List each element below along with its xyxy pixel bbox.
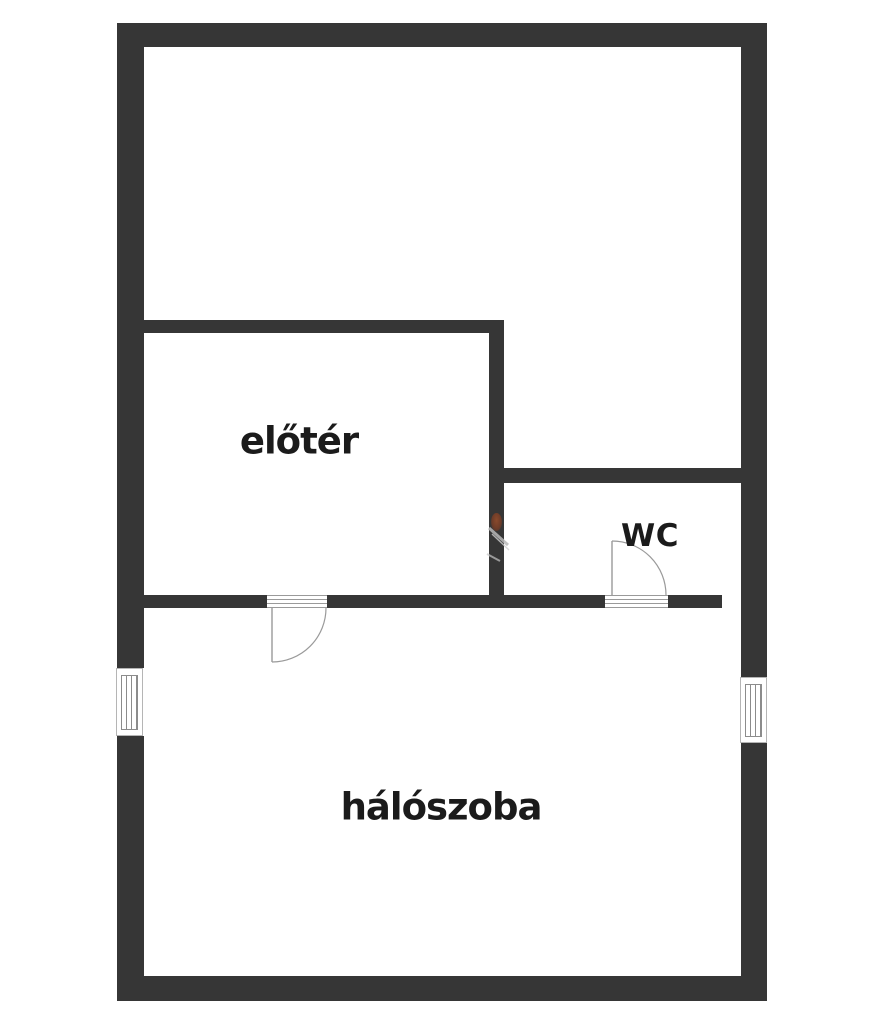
room-label-entry-hall: előtér: [240, 420, 358, 463]
wall-wc-top: [503, 468, 742, 483]
wall-entry-hall-right: [489, 320, 504, 608]
wall-entry-hall-top: [117, 320, 503, 333]
door-sill-wc: [605, 595, 668, 608]
floor-plan-canvas: előtér WC hálószoba: [0, 0, 885, 1024]
room-label-bedroom: hálószoba: [341, 786, 542, 829]
wall-exterior-left-upper: [117, 23, 144, 668]
bedroom-window-right-icon: [740, 677, 767, 743]
window-pane-lines: [745, 684, 762, 737]
wall-middle-center: [327, 595, 605, 608]
room-label-wc: WC: [621, 518, 679, 554]
wall-exterior-right-lower: [741, 743, 767, 1001]
wall-exterior-top: [117, 23, 767, 47]
wall-middle-left: [117, 595, 267, 608]
wall-exterior-right-upper: [741, 23, 767, 677]
entry-hall-door-arc-icon: [272, 608, 326, 662]
wall-exterior-left-lower: [117, 736, 144, 1001]
wall-artifact-blob: [491, 513, 502, 531]
door-sill-entry-hall: [267, 595, 327, 608]
wall-middle-right-stub: [668, 595, 722, 608]
window-pane-lines: [121, 675, 138, 730]
bedroom-window-left-icon: [116, 668, 143, 736]
wall-exterior-bottom: [117, 976, 767, 1001]
